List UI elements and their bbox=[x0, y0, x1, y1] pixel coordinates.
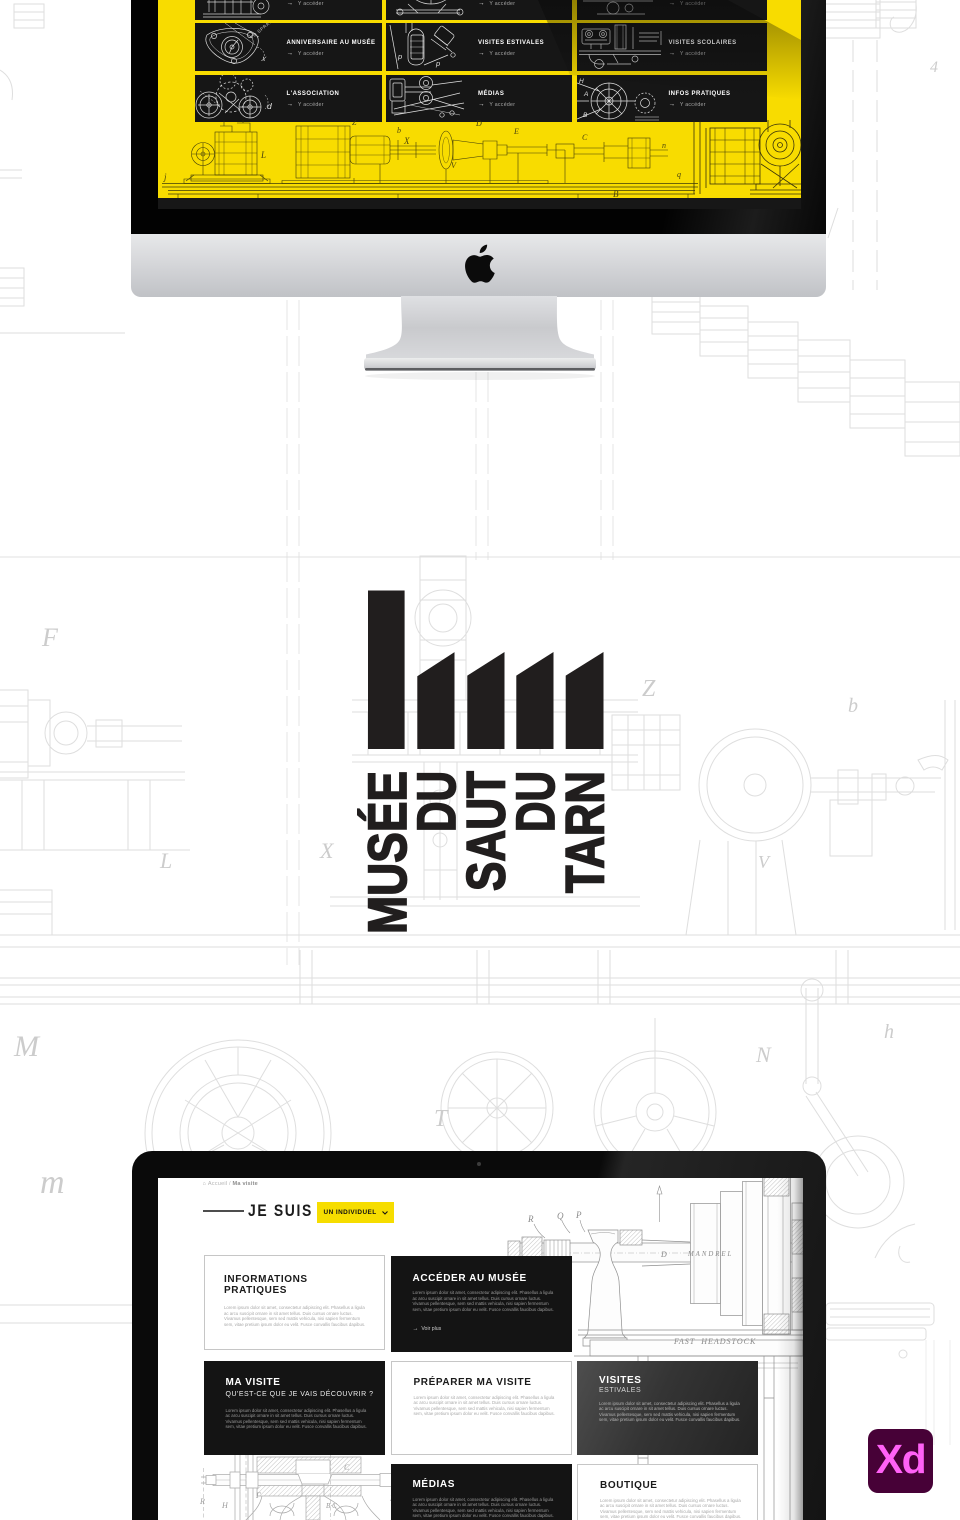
svg-text:N: N bbox=[755, 1042, 772, 1067]
svg-text:F: F bbox=[41, 623, 59, 652]
svg-text:X: X bbox=[319, 838, 335, 863]
svg-text:B·C: B·C bbox=[326, 1502, 337, 1510]
svg-text:m: m bbox=[40, 1164, 65, 1201]
svg-text:R: R bbox=[527, 1214, 534, 1224]
svg-text:TARN: TARN bbox=[554, 771, 610, 893]
svg-text:M: M bbox=[13, 1030, 41, 1063]
svg-text:C: C bbox=[344, 1463, 350, 1472]
svg-text:4: 4 bbox=[930, 59, 938, 76]
svg-text:Q: Q bbox=[557, 1211, 564, 1221]
svg-text:V: V bbox=[758, 852, 771, 872]
svg-text:Γ: Γ bbox=[255, 1491, 261, 1500]
svg-text:Z: Z bbox=[642, 676, 656, 702]
svg-text:D: D bbox=[660, 1250, 667, 1259]
svg-text:h: h bbox=[884, 1021, 894, 1043]
svg-text:T: T bbox=[434, 1106, 449, 1132]
svg-text:MANDREL: MANDREL bbox=[687, 1251, 733, 1258]
svg-text:P: P bbox=[575, 1210, 582, 1220]
svg-text:b: b bbox=[848, 695, 858, 717]
svg-text:L: L bbox=[159, 848, 172, 873]
svg-text:R: R bbox=[199, 1497, 205, 1506]
svg-text:FAST HEADSTOCK: FAST HEADSTOCK bbox=[673, 1337, 756, 1346]
svg-text:H: H bbox=[221, 1501, 229, 1510]
